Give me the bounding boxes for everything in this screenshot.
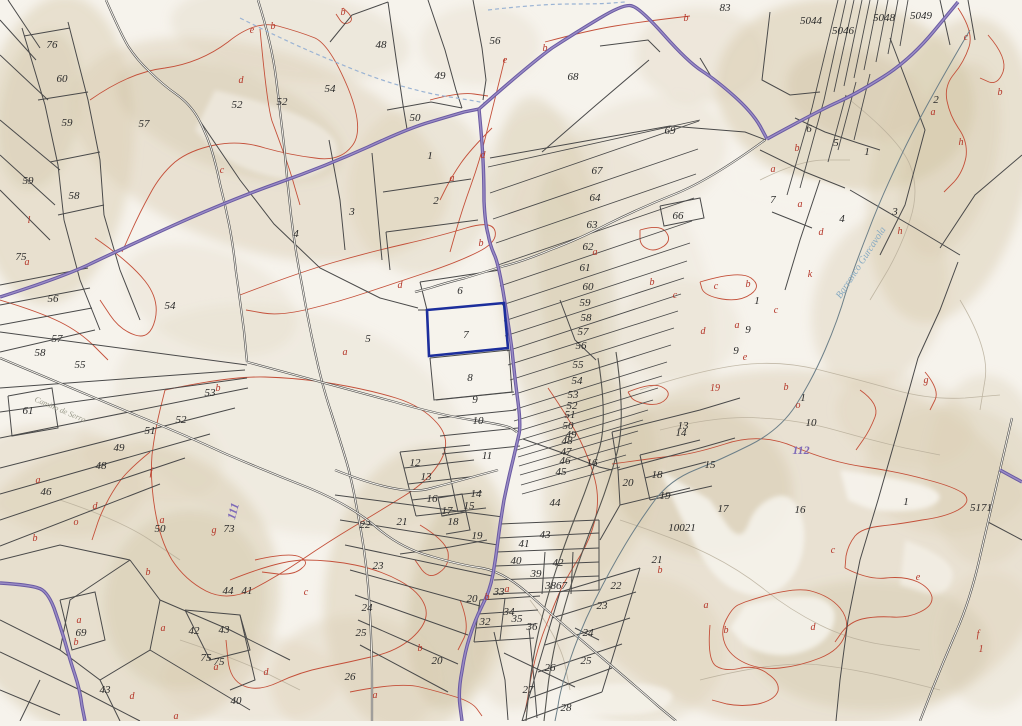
svg-text:76: 76 [47, 39, 59, 51]
svg-text:14: 14 [471, 488, 483, 500]
svg-text:43: 43 [100, 684, 112, 696]
svg-text:61: 61 [23, 405, 34, 417]
svg-text:56: 56 [48, 293, 60, 305]
svg-text:b: b [658, 565, 663, 576]
svg-text:4: 4 [293, 228, 299, 240]
svg-text:b: b [479, 238, 484, 249]
svg-text:13: 13 [421, 471, 433, 483]
svg-text:25: 25 [581, 655, 593, 667]
svg-text:10: 10 [473, 415, 485, 427]
svg-text:b: b [746, 279, 751, 290]
svg-text:46: 46 [41, 486, 53, 498]
svg-text:59: 59 [580, 297, 592, 309]
svg-text:40: 40 [511, 555, 523, 567]
svg-text:19: 19 [660, 490, 672, 502]
svg-text:18: 18 [448, 516, 460, 528]
svg-text:b: b [418, 643, 423, 654]
svg-text:2: 2 [933, 94, 939, 106]
svg-text:68: 68 [568, 71, 580, 83]
svg-text:60: 60 [57, 73, 69, 85]
svg-text:9: 9 [472, 394, 478, 406]
svg-text:22: 22 [611, 580, 623, 592]
svg-text:66: 66 [673, 210, 685, 222]
svg-text:75: 75 [201, 652, 213, 664]
svg-text:19: 19 [710, 383, 720, 394]
svg-text:1: 1 [800, 392, 806, 404]
svg-text:h: h [959, 137, 964, 148]
svg-text:b: b [216, 383, 221, 394]
svg-text:59: 59 [62, 117, 74, 129]
svg-text:60: 60 [583, 281, 595, 293]
svg-text:15: 15 [464, 500, 476, 512]
svg-text:b: b [784, 382, 789, 393]
svg-text:83: 83 [720, 2, 732, 14]
svg-text:53: 53 [205, 387, 217, 399]
svg-text:b: b [684, 13, 689, 24]
svg-text:5048: 5048 [873, 12, 896, 24]
svg-text:3867: 3867 [544, 580, 568, 592]
svg-text:58: 58 [69, 190, 81, 202]
svg-text:52: 52 [277, 96, 289, 108]
svg-text:1: 1 [864, 146, 870, 158]
svg-text:5: 5 [833, 137, 839, 149]
svg-text:20: 20 [432, 655, 444, 667]
svg-text:c: c [304, 587, 309, 598]
svg-text:a: a [174, 711, 179, 721]
svg-text:14: 14 [676, 427, 688, 439]
svg-text:54: 54 [572, 375, 584, 387]
svg-text:10021: 10021 [668, 522, 696, 534]
svg-text:49: 49 [114, 442, 126, 454]
svg-text:6: 6 [457, 285, 463, 297]
svg-text:a: a [373, 690, 378, 701]
svg-text:b: b [650, 277, 655, 288]
svg-text:a: a [505, 584, 510, 595]
svg-text:c: c [714, 281, 719, 292]
svg-text:o: o [796, 400, 801, 411]
svg-text:20: 20 [467, 593, 479, 605]
svg-text:112: 112 [792, 443, 809, 457]
svg-text:1: 1 [903, 496, 909, 508]
svg-text:e: e [503, 55, 508, 66]
svg-text:64: 64 [590, 192, 602, 204]
svg-text:10: 10 [806, 417, 818, 429]
svg-text:a: a [931, 107, 936, 118]
svg-text:42: 42 [553, 557, 565, 569]
svg-text:5049: 5049 [910, 10, 933, 22]
svg-text:b: b [74, 637, 79, 648]
svg-text:59: 59 [23, 175, 35, 187]
svg-text:9: 9 [745, 324, 751, 336]
svg-text:e: e [916, 572, 921, 583]
svg-text:g: g [212, 525, 217, 536]
svg-text:5044: 5044 [800, 15, 823, 27]
svg-text:c: c [831, 545, 836, 556]
svg-text:g: g [924, 375, 929, 386]
svg-text:50: 50 [410, 112, 422, 124]
svg-text:c: c [673, 290, 678, 301]
svg-text:9: 9 [733, 345, 739, 357]
svg-text:41: 41 [519, 538, 530, 550]
svg-text:48: 48 [376, 39, 388, 51]
svg-text:h: h [898, 226, 903, 237]
svg-text:4: 4 [839, 213, 845, 225]
svg-text:b: b [341, 7, 346, 18]
svg-text:52: 52 [176, 414, 188, 426]
svg-text:26: 26 [345, 671, 357, 683]
svg-text:24: 24 [583, 627, 595, 639]
svg-text:16: 16 [587, 457, 599, 469]
svg-text:41: 41 [242, 585, 253, 597]
svg-text:a: a [704, 600, 709, 611]
svg-text:b: b [271, 21, 276, 32]
svg-text:17: 17 [718, 503, 730, 515]
svg-text:e: e [743, 352, 748, 363]
svg-text:57: 57 [578, 326, 590, 338]
svg-text:a: a [36, 475, 41, 486]
svg-text:69: 69 [665, 125, 677, 137]
svg-text:8: 8 [467, 372, 473, 384]
svg-text:55: 55 [75, 359, 87, 371]
svg-text:67: 67 [592, 165, 604, 177]
svg-text:a: a [77, 615, 82, 626]
svg-text:19: 19 [472, 530, 484, 542]
svg-text:33: 33 [493, 586, 506, 598]
svg-text:54: 54 [165, 300, 177, 312]
svg-text:a: a [593, 247, 598, 258]
svg-text:b: b [485, 592, 490, 603]
svg-text:16: 16 [795, 504, 807, 516]
svg-text:a: a [25, 257, 30, 268]
svg-text:12: 12 [410, 457, 422, 469]
svg-text:21: 21 [397, 516, 408, 528]
svg-text:5046: 5046 [832, 25, 855, 37]
svg-text:a: a [160, 515, 165, 526]
svg-text:1: 1 [754, 295, 760, 307]
svg-text:b: b [998, 87, 1003, 98]
svg-text:a: a [161, 623, 166, 634]
svg-text:44: 44 [223, 585, 235, 597]
svg-text:32: 32 [479, 616, 492, 628]
svg-text:23: 23 [597, 600, 609, 612]
svg-text:44: 44 [550, 497, 562, 509]
svg-text:25: 25 [356, 627, 368, 639]
svg-text:43: 43 [540, 529, 552, 541]
svg-text:52: 52 [232, 99, 244, 111]
svg-text:45: 45 [556, 466, 568, 478]
svg-text:b: b [33, 533, 38, 544]
svg-text:42: 42 [189, 625, 201, 637]
svg-text:b: b [146, 567, 151, 578]
svg-text:26: 26 [545, 662, 557, 674]
svg-text:a: a [771, 164, 776, 175]
svg-text:57: 57 [139, 118, 151, 130]
svg-text:55: 55 [573, 359, 585, 371]
svg-text:a: a [343, 347, 348, 358]
svg-text:a: a [735, 320, 740, 331]
svg-text:22: 22 [360, 519, 372, 531]
svg-text:58: 58 [581, 312, 593, 324]
svg-text:24: 24 [362, 602, 374, 614]
svg-text:6: 6 [806, 123, 812, 135]
svg-text:36: 36 [526, 621, 539, 633]
svg-text:3: 3 [348, 206, 355, 218]
svg-text:16: 16 [427, 493, 439, 505]
svg-text:1: 1 [427, 150, 433, 162]
svg-text:73: 73 [224, 523, 236, 535]
svg-text:18: 18 [652, 469, 664, 481]
svg-text:5171: 5171 [970, 502, 992, 514]
svg-text:b: b [543, 43, 548, 54]
svg-text:7: 7 [770, 194, 776, 206]
svg-text:b: b [795, 143, 800, 154]
svg-text:15: 15 [705, 459, 717, 471]
svg-text:c: c [964, 32, 969, 43]
svg-text:27: 27 [523, 684, 535, 696]
svg-text:34: 34 [503, 606, 516, 618]
svg-text:48: 48 [96, 460, 108, 472]
svg-text:61: 61 [580, 262, 591, 274]
svg-text:49: 49 [435, 70, 447, 82]
svg-text:a: a [798, 199, 803, 210]
svg-text:23: 23 [373, 560, 385, 572]
svg-text:c: c [220, 165, 225, 176]
svg-text:7: 7 [463, 329, 469, 341]
svg-text:40: 40 [231, 695, 243, 707]
svg-text:39: 39 [530, 568, 543, 580]
svg-text:5: 5 [365, 333, 371, 345]
svg-text:c: c [774, 305, 779, 316]
svg-text:20: 20 [623, 477, 635, 489]
svg-text:54: 54 [325, 83, 337, 95]
svg-text:a: a [450, 173, 455, 184]
svg-text:58: 58 [35, 347, 47, 359]
svg-text:56: 56 [576, 340, 588, 352]
svg-text:2: 2 [433, 195, 439, 207]
svg-text:l: l [28, 215, 31, 226]
svg-text:51: 51 [145, 425, 156, 437]
svg-text:a: a [214, 662, 219, 673]
svg-text:e: e [250, 25, 255, 36]
svg-text:28: 28 [561, 702, 573, 714]
svg-text:43: 43 [219, 624, 231, 636]
svg-text:o: o [74, 517, 79, 528]
svg-text:56: 56 [490, 35, 502, 47]
svg-text:1: 1 [979, 644, 984, 655]
svg-text:3: 3 [891, 206, 898, 218]
svg-text:b: b [724, 625, 729, 636]
svg-text:57: 57 [52, 333, 64, 345]
svg-text:k: k [808, 269, 813, 280]
svg-text:63: 63 [587, 219, 599, 231]
svg-text:11: 11 [482, 450, 492, 462]
